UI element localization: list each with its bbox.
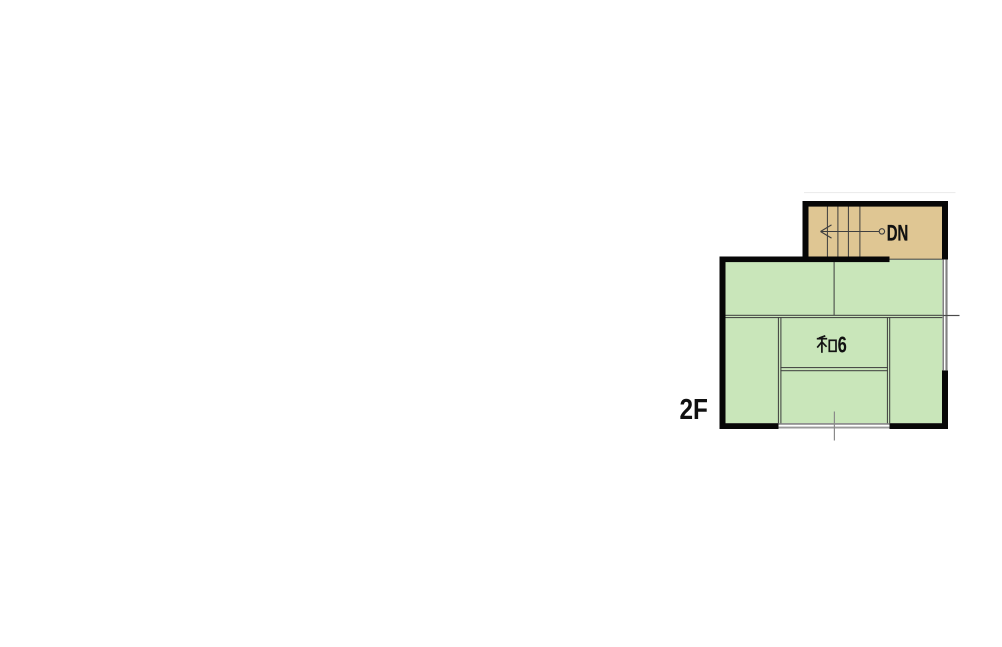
svg-text:6: 6 <box>838 333 847 358</box>
svg-text:DN: DN <box>887 222 909 247</box>
svg-text:2F: 2F <box>680 393 708 425</box>
